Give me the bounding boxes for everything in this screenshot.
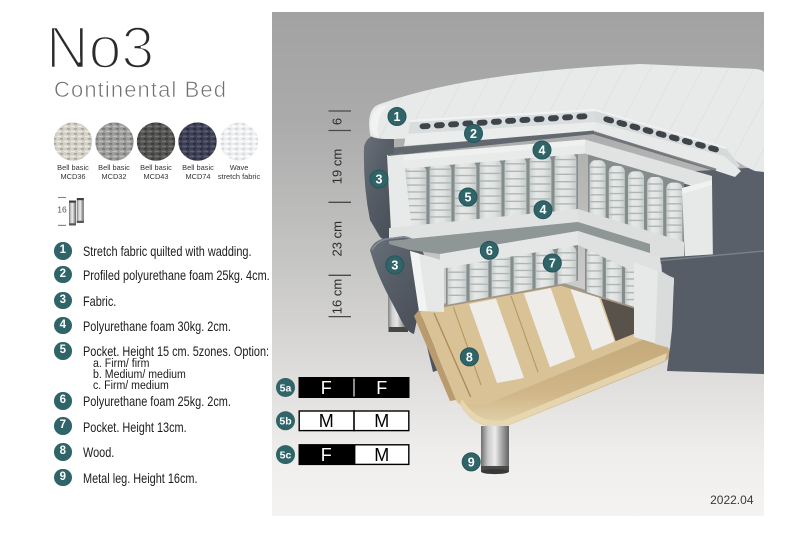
svg-text:5c: 5c	[280, 449, 292, 461]
svg-text:F: F	[321, 378, 332, 398]
svg-text:8: 8	[466, 350, 473, 364]
svg-text:5: 5	[465, 190, 472, 204]
svg-text:6: 6	[486, 244, 493, 258]
svg-text:2: 2	[470, 127, 477, 141]
svg-text:19 cm: 19 cm	[330, 149, 345, 184]
svg-text:F: F	[376, 378, 387, 398]
svg-text:M: M	[374, 411, 389, 431]
svg-text:1: 1	[394, 110, 401, 124]
svg-text:4: 4	[539, 143, 546, 157]
svg-text:16: 16	[57, 205, 67, 215]
svg-text:M: M	[319, 411, 334, 431]
svg-text:2022.04: 2022.04	[710, 493, 754, 507]
svg-text:3: 3	[391, 258, 398, 272]
svg-text:16 cm: 16 cm	[330, 279, 345, 314]
svg-text:5b: 5b	[279, 416, 291, 428]
svg-text:F: F	[321, 445, 332, 465]
svg-text:7: 7	[549, 256, 556, 270]
svg-text:4: 4	[540, 203, 547, 217]
svg-text:M: M	[374, 445, 389, 465]
svg-text:9: 9	[468, 455, 475, 469]
svg-text:23 cm: 23 cm	[330, 221, 345, 256]
svg-text:6: 6	[330, 118, 345, 125]
svg-text:3: 3	[376, 172, 383, 186]
svg-text:5a: 5a	[280, 382, 292, 394]
